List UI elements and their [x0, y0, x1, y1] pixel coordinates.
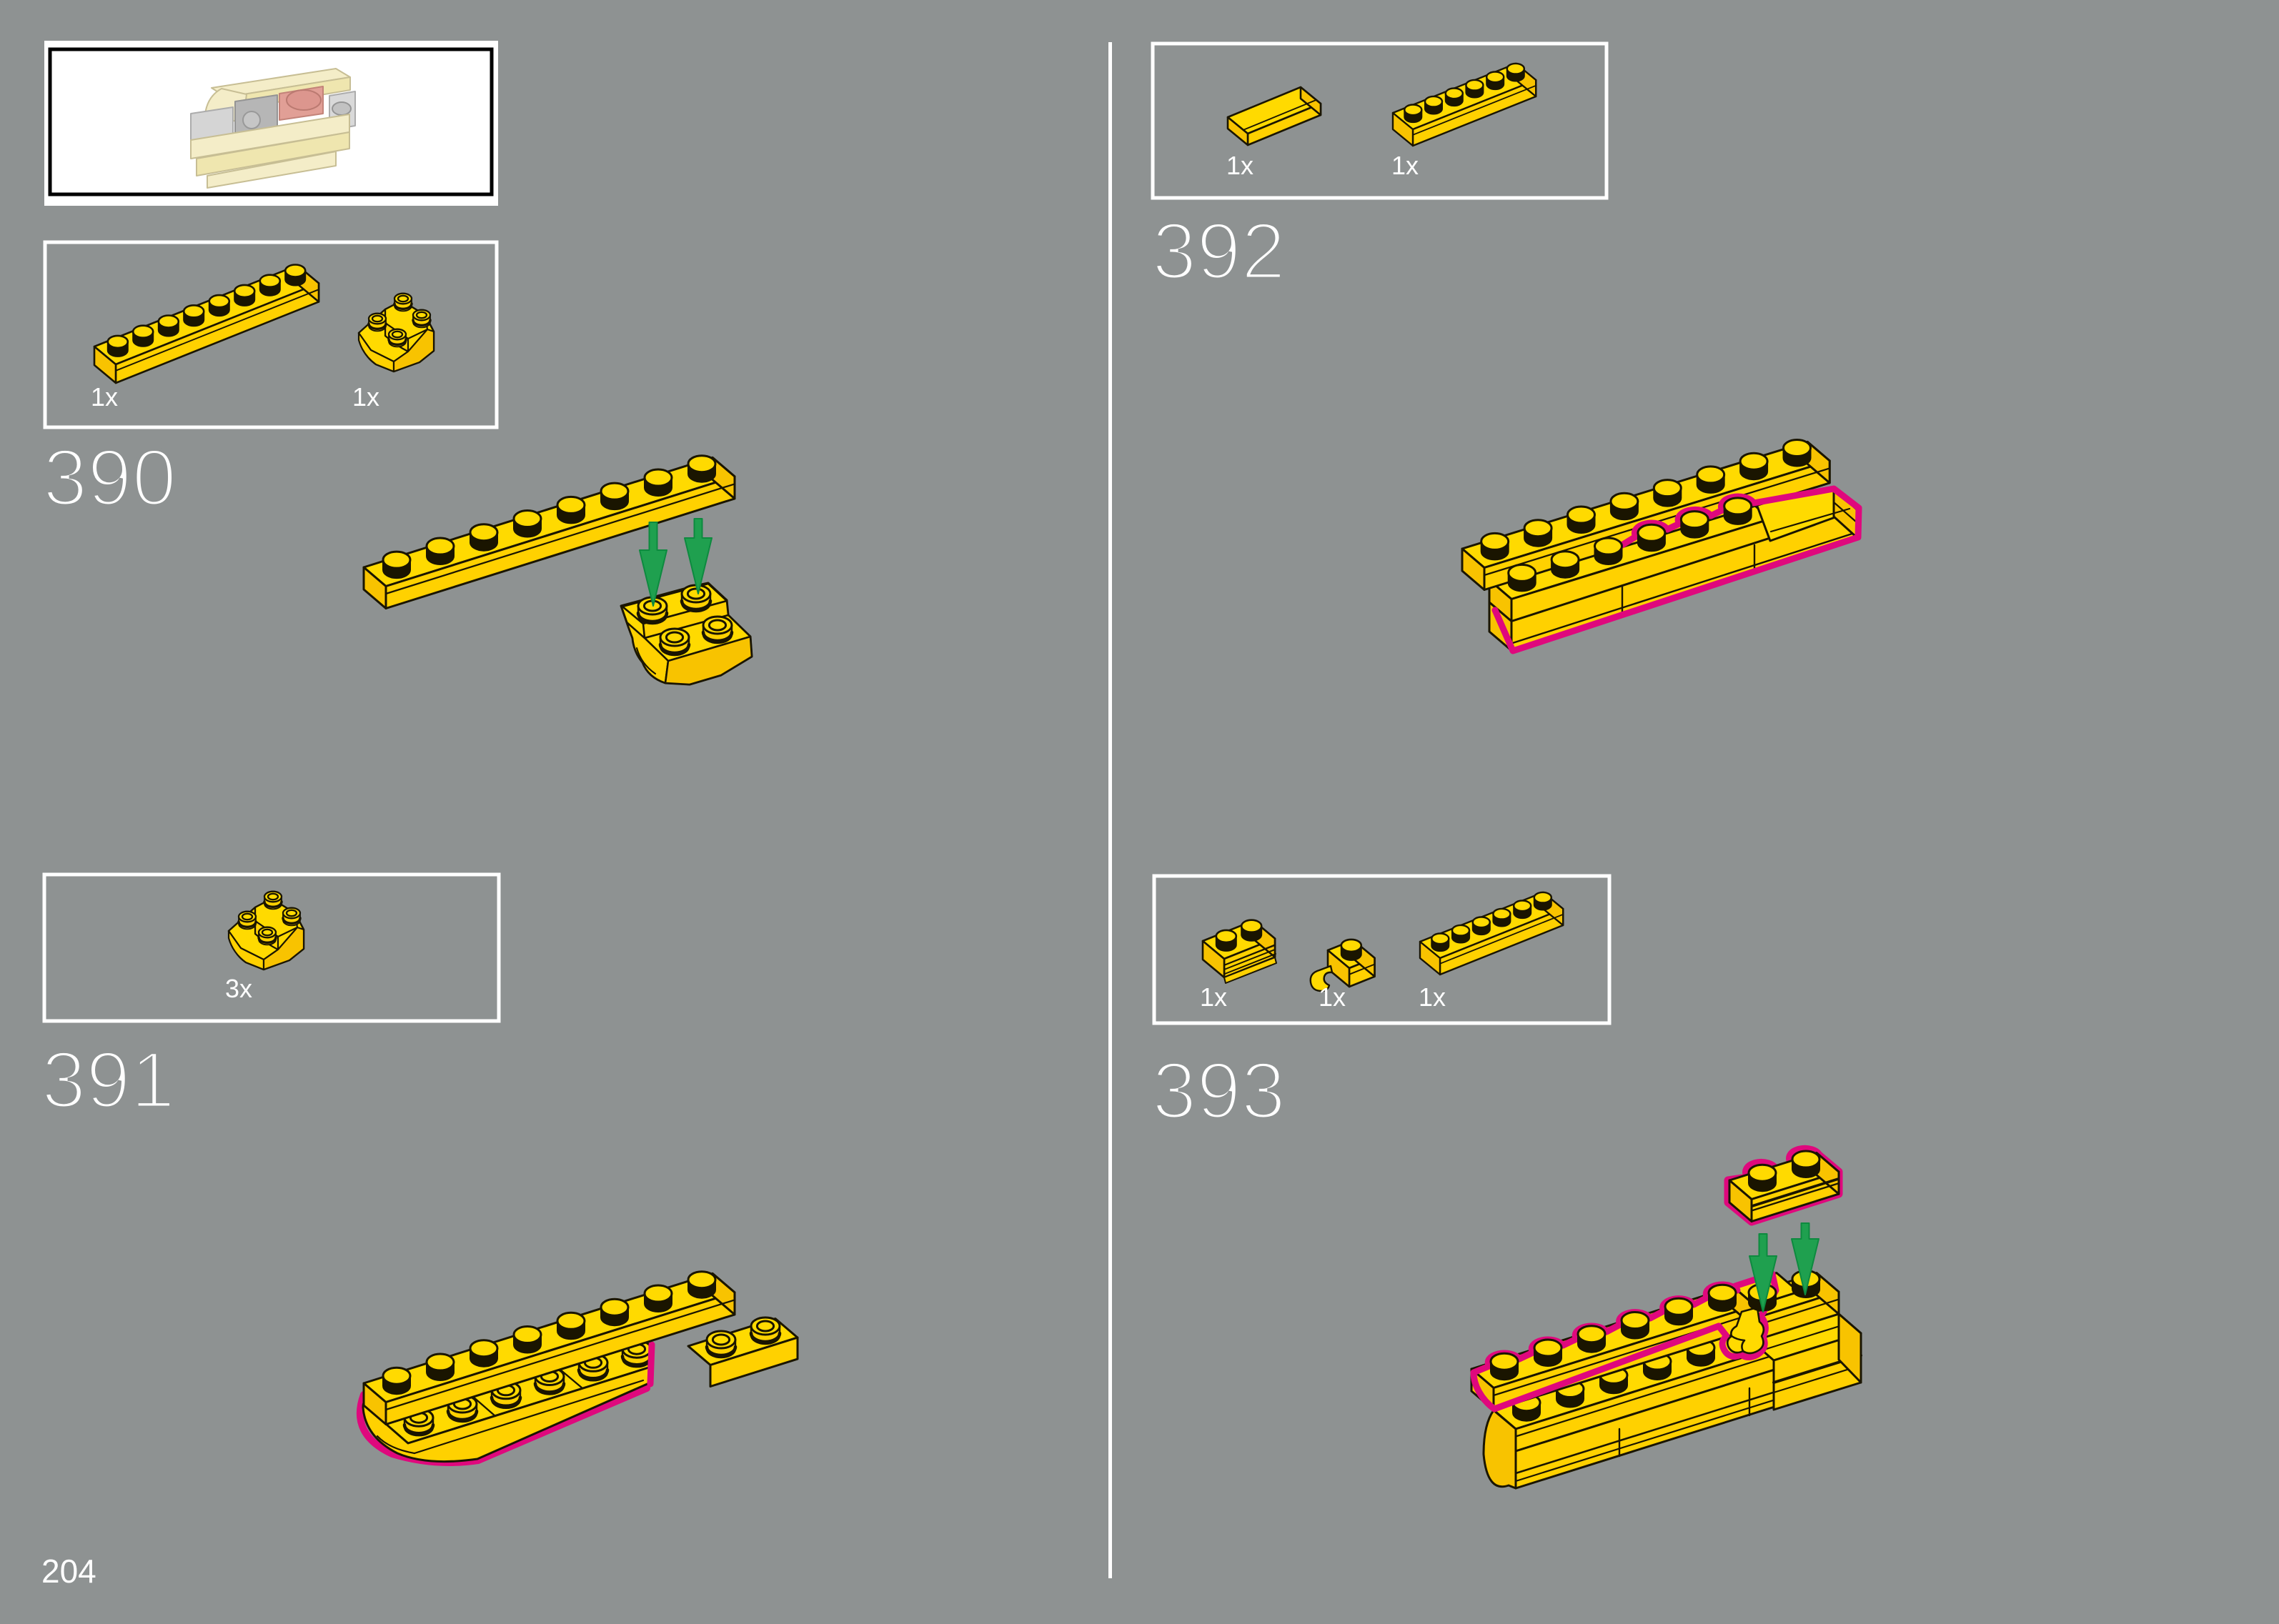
svg-text:1x: 1x: [1319, 982, 1346, 1012]
svg-text:1x: 1x: [1226, 151, 1253, 180]
svg-text:393: 393: [1152, 1046, 1286, 1135]
svg-text:392: 392: [1152, 206, 1286, 296]
svg-text:3x: 3x: [225, 974, 252, 1003]
svg-text:204: 204: [41, 1553, 96, 1590]
svg-text:1x: 1x: [91, 382, 118, 412]
svg-text:1x: 1x: [1419, 982, 1446, 1012]
svg-text:1x: 1x: [352, 382, 379, 412]
svg-text:391: 391: [41, 1035, 175, 1125]
svg-text:390: 390: [43, 433, 177, 522]
svg-text:1x: 1x: [1391, 151, 1419, 180]
svg-text:1x: 1x: [1200, 982, 1227, 1012]
